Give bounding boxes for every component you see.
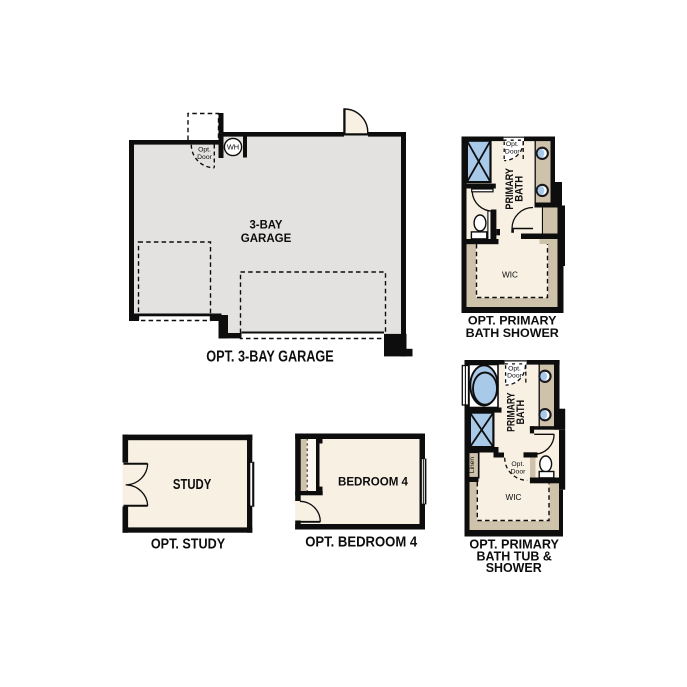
svg-text:STUDY: STUDY (173, 477, 212, 493)
svg-text:Door: Door (511, 468, 526, 475)
svg-text:Door: Door (505, 149, 520, 156)
svg-text:BATH: BATH (515, 400, 527, 425)
svg-text:SHOWER: SHOWER (486, 561, 542, 575)
svg-text:Linen: Linen (469, 457, 476, 473)
svg-text:WIC: WIC (506, 493, 522, 502)
svg-text:Opt.: Opt. (508, 365, 521, 372)
svg-text:Door: Door (197, 154, 212, 161)
svg-text:GARAGE: GARAGE (241, 231, 292, 245)
svg-text:3-BAY: 3-BAY (250, 217, 283, 231)
svg-text:WH: WH (227, 143, 239, 152)
svg-text:WIC: WIC (502, 271, 518, 280)
svg-text:OPT. BEDROOM 4: OPT. BEDROOM 4 (305, 533, 418, 550)
svg-text:OPT. 3-BAY GARAGE: OPT. 3-BAY GARAGE (206, 349, 334, 366)
svg-text:Opt.: Opt. (506, 141, 519, 148)
svg-text:BATH SHOWER: BATH SHOWER (466, 326, 559, 340)
svg-text:Opt.: Opt. (511, 461, 524, 468)
svg-text:BEDROOM 4: BEDROOM 4 (338, 474, 408, 488)
svg-text:BATH: BATH (514, 176, 526, 202)
svg-text:Opt.: Opt. (198, 146, 211, 153)
svg-text:Door: Door (507, 373, 522, 380)
svg-text:OPT. STUDY: OPT. STUDY (151, 536, 225, 553)
